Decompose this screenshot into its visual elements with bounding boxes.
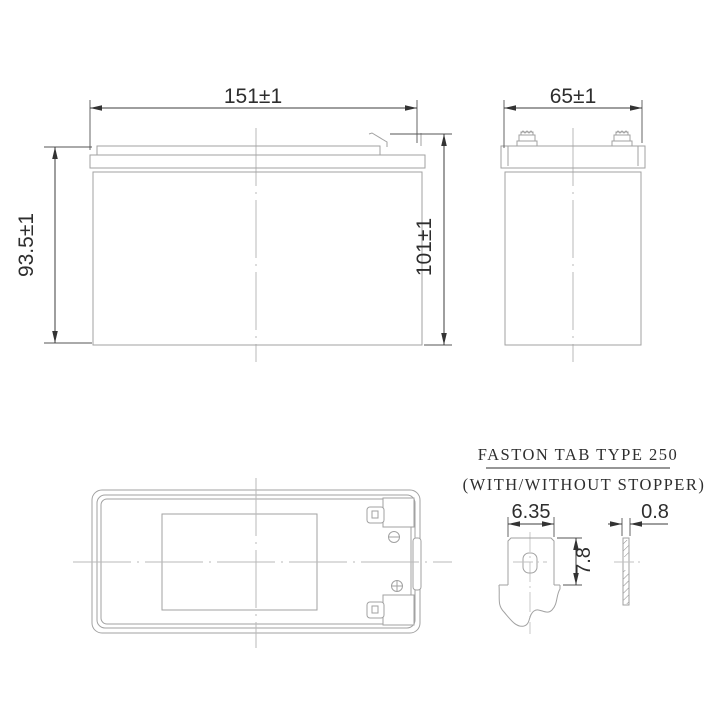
side-terminal-right bbox=[612, 131, 632, 146]
drawing-canvas: 151±1 93.5±1 101±1 bbox=[0, 0, 720, 720]
top-side-rib bbox=[413, 538, 421, 590]
tab-detail-subtitle: (WITH/WITHOUT STOPPER) bbox=[463, 475, 706, 494]
tab-front-view bbox=[499, 532, 560, 634]
side-view: 65±1 bbox=[501, 85, 645, 362]
top-view bbox=[73, 478, 452, 648]
front-total-height-dimension-label: 101±1 bbox=[413, 218, 436, 276]
front-total-height-dimension: 101±1 bbox=[390, 134, 452, 345]
tab-height-dimension-label: 7.8 bbox=[573, 547, 595, 575]
battery-dimension-drawing: 151±1 93.5±1 101±1 bbox=[0, 0, 720, 720]
negative-terminal-mark-icon bbox=[389, 532, 400, 543]
front-lid-band bbox=[90, 155, 425, 168]
front-view: 151±1 93.5±1 101±1 bbox=[15, 85, 452, 362]
side-width-dimension-label: 65±1 bbox=[550, 85, 597, 108]
tab-height-dimension: 7.8 bbox=[557, 538, 595, 585]
tab-thickness-dimension: 0.8 bbox=[608, 501, 669, 536]
tab-width-dimension: 6.35 bbox=[508, 501, 554, 537]
tab-detail-title: FASTON TAB TYPE 250 bbox=[478, 445, 679, 464]
tab-thickness-dimension-label: 0.8 bbox=[641, 501, 669, 523]
front-lid-top-strip bbox=[97, 146, 380, 155]
front-width-dimension-label: 151±1 bbox=[224, 85, 282, 108]
front-case-height-dimension-label: 93.5±1 bbox=[15, 213, 38, 277]
top-terminal-positive bbox=[367, 595, 414, 625]
front-case-height-dimension: 93.5±1 bbox=[15, 147, 92, 343]
front-body bbox=[93, 172, 422, 345]
tab-break-line bbox=[499, 585, 560, 626]
front-width-dimension: 151±1 bbox=[90, 85, 417, 150]
side-terminal-left bbox=[517, 131, 537, 146]
positive-terminal-mark-icon bbox=[392, 581, 403, 592]
top-terminal-negative bbox=[367, 498, 414, 527]
faston-tab-detail: FASTON TAB TYPE 250 (WITH/WITHOUT STOPPE… bbox=[463, 445, 706, 634]
tab-width-dimension-label: 6.35 bbox=[512, 501, 551, 523]
tab-side-view bbox=[614, 538, 640, 605]
front-terminal-blade bbox=[369, 133, 387, 147]
